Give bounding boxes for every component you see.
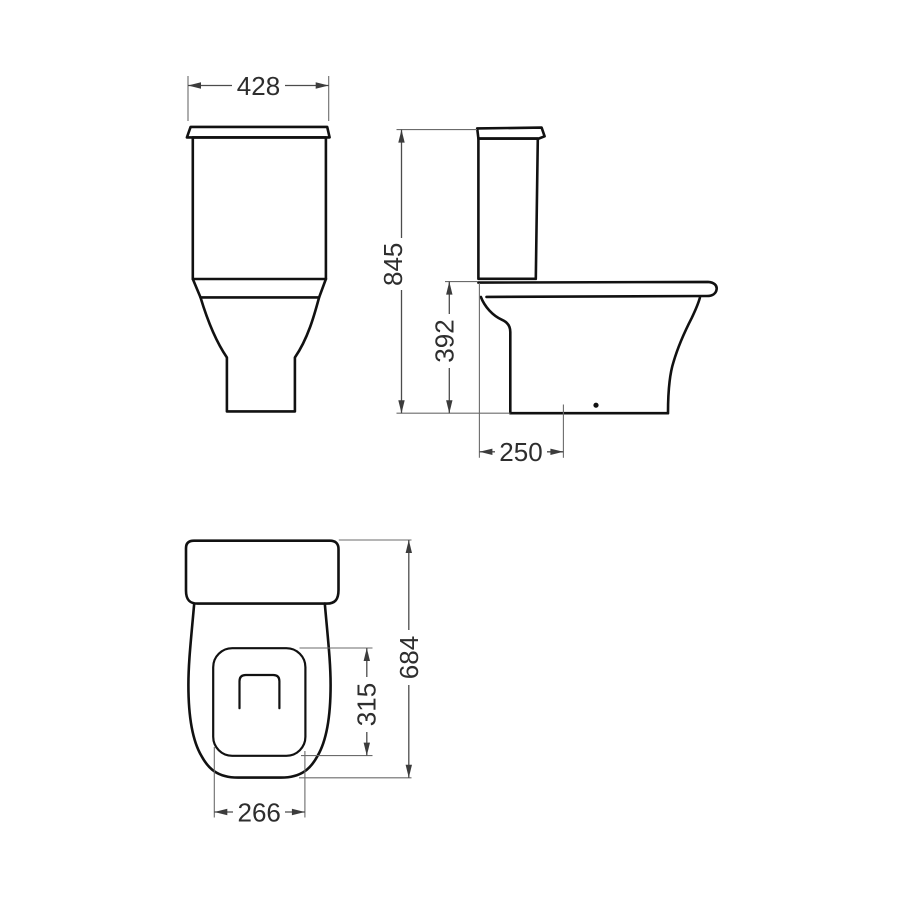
plan-bowl-opening — [213, 648, 305, 756]
dim-overall-depth-label: 684 — [394, 636, 424, 679]
dim-opening-depth-label: 315 — [351, 683, 381, 726]
dim-bowl-height-label: 392 — [429, 319, 459, 362]
side-cistern-lid — [477, 128, 544, 139]
dim-opening-width: 266 — [214, 747, 305, 827]
side-cistern-body — [478, 139, 537, 279]
front-pedestal — [201, 297, 320, 411]
dim-overall-height-label: 845 — [378, 243, 408, 286]
dim-front-width-label: 428 — [237, 71, 280, 101]
front-cistern-lid — [187, 127, 330, 137]
toilet-technical-drawing: 428 845 392 — [0, 0, 900, 900]
plan-flush-channel — [240, 675, 280, 708]
side-outlet-dot — [593, 403, 598, 408]
plan-seat-outline — [188, 604, 330, 778]
dim-overall-height: 845 — [378, 130, 477, 414]
side-seat-platform — [478, 282, 716, 297]
side-bowl-body — [481, 297, 700, 413]
plan-cistern-outline — [186, 541, 339, 604]
front-cistern-body — [193, 137, 326, 279]
dim-front-width: 428 — [188, 71, 329, 121]
dim-outlet-distance-label: 250 — [499, 437, 542, 467]
dim-opening-depth: 315 — [300, 648, 382, 756]
plan-view: 684 315 266 — [186, 540, 424, 827]
dim-bowl-height: 392 — [429, 282, 478, 414]
side-elevation-view: 845 392 250 — [378, 128, 717, 468]
dim-overall-depth: 684 — [299, 540, 424, 778]
dim-outlet-distance: 250 — [479, 283, 563, 467]
front-elevation-view: 428 — [187, 71, 330, 411]
front-bowl-rim — [193, 279, 326, 297]
dim-opening-width-label: 266 — [238, 797, 281, 827]
